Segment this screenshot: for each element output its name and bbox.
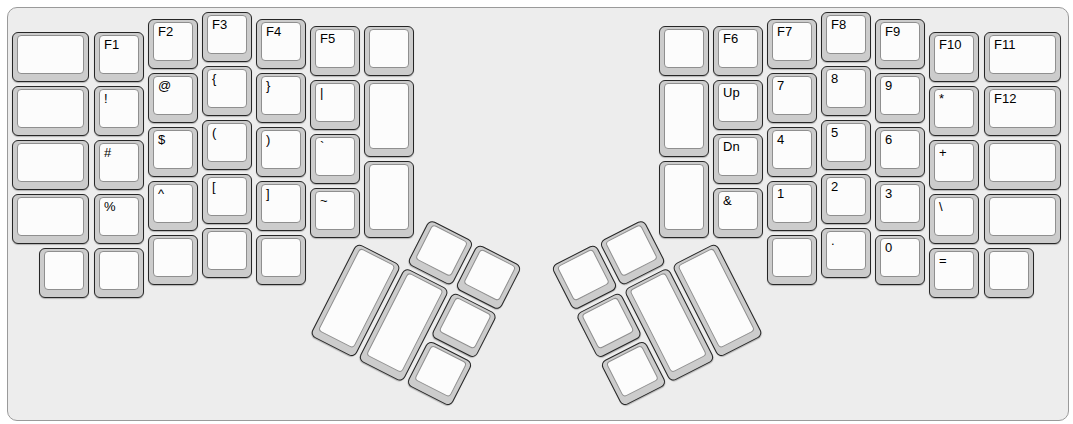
key-4[interactable]: 4 — [767, 127, 817, 177]
key-blank[interactable] — [364, 26, 414, 76]
keycap-top-surface — [664, 83, 704, 149]
key-f11[interactable]: F11 — [984, 32, 1061, 82]
key-label: F5 — [320, 31, 335, 46]
key-label: 8 — [831, 71, 838, 86]
keycap-top-surface: + — [934, 143, 974, 182]
key-blank[interactable] — [256, 235, 306, 285]
keycap-top-surface — [261, 238, 301, 277]
key-rparen[interactable]: ) — [256, 127, 306, 177]
key-label: \ — [939, 199, 943, 214]
keyboard-layout-canvas: F1!#%F2@$^F3{([F4})]F5|`~F6UpDn&F7741F88… — [0, 0, 1073, 424]
key-f6[interactable]: F6 — [713, 26, 763, 76]
key-percent[interactable]: % — [94, 194, 144, 244]
keycap-top-surface: ] — [261, 184, 301, 223]
key-label: ! — [104, 91, 108, 106]
keycap-top-surface — [17, 143, 84, 182]
keycap-top-surface: 6 — [880, 130, 920, 169]
keycap-top-surface: F1 — [99, 35, 139, 74]
keycap-top-surface: 7 — [772, 76, 812, 115]
key-label: 4 — [777, 132, 784, 147]
key-blank[interactable] — [659, 80, 709, 157]
key-label: Dn — [723, 139, 740, 154]
keycap-top-surface: @ — [153, 76, 193, 115]
keycap-top-surface: F7 — [772, 22, 812, 61]
keycap-top-surface: ! — [99, 89, 139, 128]
key-blank[interactable] — [39, 248, 89, 298]
key-f12[interactable]: F12 — [984, 86, 1061, 136]
key-6[interactable]: 6 — [875, 127, 925, 177]
key-blank[interactable] — [659, 161, 709, 238]
keycap-top-surface — [17, 197, 84, 236]
keycap-top-surface: ) — [261, 130, 301, 169]
key-backtick[interactable]: ` — [310, 134, 360, 184]
key-label: 9 — [885, 78, 892, 93]
key-label: F10 — [939, 37, 961, 52]
key-f7[interactable]: F7 — [767, 19, 817, 69]
key-lbracket[interactable]: [ — [202, 174, 252, 224]
key-lparen[interactable]: ( — [202, 120, 252, 170]
key-tilde[interactable]: ~ — [310, 188, 360, 238]
key-blank[interactable] — [12, 140, 89, 190]
keycap-top-surface — [989, 143, 1056, 182]
keycap-top-surface — [369, 164, 409, 230]
keycap-top-surface: $ — [153, 130, 193, 169]
keycap-top-surface: ` — [315, 137, 355, 176]
keycap-top-surface: ~ — [315, 191, 355, 230]
keycap-top-surface — [581, 297, 634, 350]
keycap-top-surface: Up — [718, 83, 758, 122]
keycap-top-surface: F3 — [207, 15, 247, 54]
key-at[interactable]: @ — [148, 73, 198, 123]
keycap-top-surface — [153, 238, 193, 277]
keycap-top-surface — [369, 29, 409, 68]
key-label: 7 — [777, 78, 784, 93]
key-blank[interactable] — [984, 194, 1061, 244]
keycap-top-surface: F2 — [153, 22, 193, 61]
keycap-top-surface — [99, 251, 139, 290]
key-2[interactable]: 2 — [821, 174, 871, 224]
key-label: ( — [212, 125, 216, 140]
key-label: F9 — [885, 24, 900, 39]
key-up[interactable]: Up — [713, 80, 763, 130]
key-label: ~ — [320, 193, 328, 208]
key-label: + — [939, 145, 947, 160]
key-label: . — [831, 233, 835, 248]
keycap-top-surface — [207, 231, 247, 270]
keycap-top-surface: ^ — [153, 184, 193, 223]
key-plus[interactable]: + — [929, 140, 979, 190]
key-blank[interactable] — [94, 248, 144, 298]
key-label: % — [104, 199, 116, 214]
key-equals[interactable]: = — [929, 248, 979, 298]
key-label: F8 — [831, 17, 846, 32]
key-dollar[interactable]: $ — [148, 127, 198, 177]
key-f2[interactable]: F2 — [148, 19, 198, 69]
key-blank[interactable] — [984, 248, 1034, 298]
keycap-top-surface — [606, 345, 659, 398]
key-label: F6 — [723, 31, 738, 46]
keycap-top-surface — [664, 29, 704, 68]
key-lbrace[interactable]: { — [202, 66, 252, 116]
keycap-top-surface: F8 — [826, 15, 866, 54]
key-blank[interactable] — [12, 194, 89, 244]
key-blank[interactable] — [12, 32, 89, 82]
key-dn[interactable]: Dn — [713, 134, 763, 184]
keycap-top-surface: 5 — [826, 123, 866, 162]
key-ampersand[interactable]: & — [713, 188, 763, 238]
keycap-top-surface: F10 — [934, 35, 974, 74]
key-hash[interactable]: # — [94, 140, 144, 190]
key-label: F12 — [994, 91, 1016, 106]
keycap-top-surface: Dn — [718, 137, 758, 176]
key-label: 2 — [831, 179, 838, 194]
key-backslash[interactable]: \ — [929, 194, 979, 244]
key-blank[interactable] — [364, 80, 414, 157]
keycap-top-surface: 2 — [826, 177, 866, 216]
keycap-top-surface: . — [826, 231, 866, 270]
keycap-top-surface — [605, 224, 658, 277]
keycap-top-surface: * — [934, 89, 974, 128]
key-exclam[interactable]: ! — [94, 86, 144, 136]
keycap-top-surface — [989, 197, 1056, 236]
key-blank[interactable] — [202, 228, 252, 278]
keycap-top-surface: } — [261, 76, 301, 115]
keycap-top-surface — [415, 224, 468, 277]
key-label: 5 — [831, 125, 838, 140]
key-pipe[interactable]: | — [310, 80, 360, 130]
key-blank[interactable] — [984, 140, 1061, 190]
key-blank[interactable] — [12, 86, 89, 136]
key-asterisk[interactable]: * — [929, 86, 979, 136]
key-label: [ — [212, 179, 216, 194]
keycap-top-surface — [664, 164, 704, 230]
keycap-top-surface: % — [99, 197, 139, 236]
key-label: 6 — [885, 132, 892, 147]
key-f4[interactable]: F4 — [256, 19, 306, 69]
key-rbrace[interactable]: } — [256, 73, 306, 123]
key-label: 1 — [777, 186, 784, 201]
key-label: # — [104, 145, 111, 160]
key-blank[interactable] — [659, 26, 709, 76]
key-f10[interactable]: F10 — [929, 32, 979, 82]
key-f1[interactable]: F1 — [94, 32, 144, 82]
key-label: Up — [723, 85, 740, 100]
keycap-top-surface: \ — [934, 197, 974, 236]
keycap-top-surface — [44, 251, 84, 290]
keycap-top-surface: 4 — [772, 130, 812, 169]
keycap-top-surface: # — [99, 143, 139, 182]
keycap-top-surface: ( — [207, 123, 247, 162]
keycap-top-surface: F11 — [989, 35, 1056, 74]
keycap-top-surface: F9 — [880, 22, 920, 61]
key-f3[interactable]: F3 — [202, 12, 252, 62]
key-1[interactable]: 1 — [767, 181, 817, 231]
key-5[interactable]: 5 — [821, 120, 871, 170]
keycap-top-surface: | — [315, 83, 355, 122]
key-rbracket[interactable]: ] — [256, 181, 306, 231]
key-label: 3 — [885, 186, 892, 201]
keycap-top-surface — [463, 249, 516, 302]
keycap-top-surface — [17, 89, 84, 128]
keys-layer: F1!#%F2@$^F3{([F4})]F5|`~F6UpDn&F7741F88… — [0, 0, 1073, 424]
key-label: ) — [266, 132, 270, 147]
keycap-top-surface: 8 — [826, 69, 866, 108]
key-label: } — [266, 78, 270, 93]
keycap-top-surface — [17, 35, 84, 74]
key-period[interactable]: . — [821, 228, 871, 278]
key-label: = — [939, 253, 947, 268]
keycap-top-surface: F12 — [989, 89, 1056, 128]
key-label: | — [320, 85, 323, 100]
key-label: @ — [158, 78, 171, 93]
keycap-top-surface — [557, 249, 610, 302]
key-blank[interactable] — [148, 235, 198, 285]
key-label: ^ — [158, 186, 164, 201]
key-f5[interactable]: F5 — [310, 26, 360, 76]
key-label: 0 — [885, 240, 892, 255]
key-label: F1 — [104, 37, 119, 52]
keycap-top-surface: [ — [207, 177, 247, 216]
key-label: F2 — [158, 24, 173, 39]
keycap-top-surface: F5 — [315, 29, 355, 68]
keycap-top-surface: & — [718, 191, 758, 230]
keycap-top-surface — [438, 297, 491, 350]
key-label: F3 — [212, 17, 227, 32]
key-label: $ — [158, 132, 165, 147]
key-7[interactable]: 7 — [767, 73, 817, 123]
key-0[interactable]: 0 — [875, 235, 925, 285]
key-3[interactable]: 3 — [875, 181, 925, 231]
key-blank[interactable] — [767, 235, 817, 285]
keycap-top-surface: { — [207, 69, 247, 108]
keycap-top-surface — [369, 83, 409, 149]
keycap-top-surface: 3 — [880, 184, 920, 223]
key-f8[interactable]: F8 — [821, 12, 871, 62]
key-label: ] — [266, 186, 270, 201]
key-f9[interactable]: F9 — [875, 19, 925, 69]
key-label: F4 — [266, 24, 281, 39]
keycap-top-surface — [414, 345, 467, 398]
keycap-top-surface — [989, 251, 1029, 290]
keycap-top-surface: 0 — [880, 238, 920, 277]
key-label: ` — [320, 139, 324, 154]
key-label: F7 — [777, 24, 792, 39]
keycap-top-surface: 1 — [772, 184, 812, 223]
key-9[interactable]: 9 — [875, 73, 925, 123]
key-label: F11 — [994, 37, 1015, 52]
keycap-top-surface: 9 — [880, 76, 920, 115]
keycap-top-surface: F6 — [718, 29, 758, 68]
keycap-top-surface: F4 — [261, 22, 301, 61]
key-8[interactable]: 8 — [821, 66, 871, 116]
key-label: { — [212, 71, 216, 86]
key-label: & — [723, 193, 732, 208]
keycap-top-surface — [772, 238, 812, 277]
key-label: * — [939, 91, 944, 106]
key-caret[interactable]: ^ — [148, 181, 198, 231]
key-blank[interactable] — [364, 161, 414, 238]
keycap-top-surface: = — [934, 251, 974, 290]
